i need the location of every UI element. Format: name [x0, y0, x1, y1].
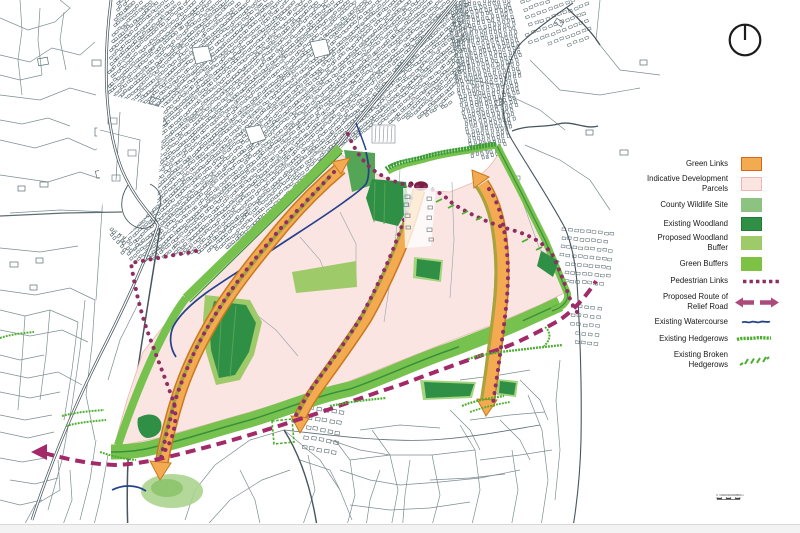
- svg-text:500m: 500m: [736, 493, 744, 497]
